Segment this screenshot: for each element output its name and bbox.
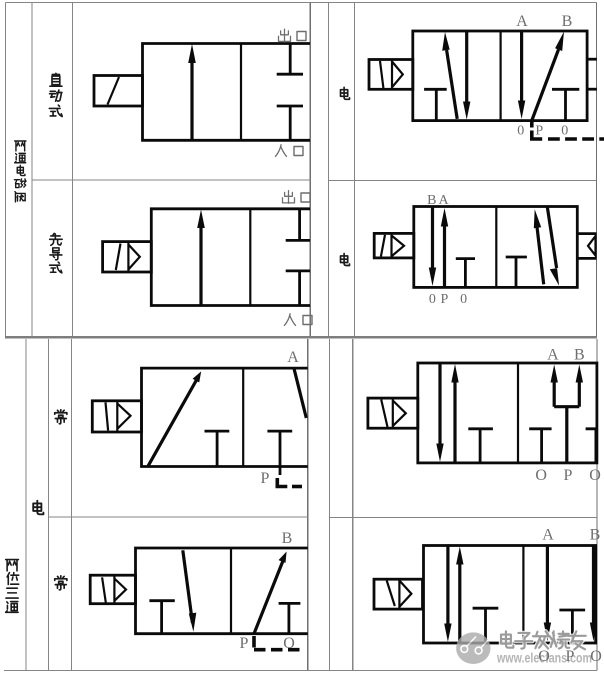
svg-text:P: P [566,648,575,665]
svg-text:A: A [547,347,559,364]
svg-text:P: P [535,124,543,139]
svg-text:O: O [589,467,601,484]
svg-text:B: B [282,530,293,547]
svg-text:P: P [441,292,449,307]
svg-text:O: O [590,648,602,665]
svg-text:B: B [574,347,585,364]
svg-text:0: 0 [429,292,436,307]
svg-text:O: O [535,467,547,484]
svg-text:P: P [240,635,249,652]
svg-text:A: A [439,193,450,208]
svg-text:0: 0 [517,124,524,139]
svg-text:P: P [261,470,270,487]
svg-text:P: P [564,467,573,484]
svg-text:B: B [562,13,573,30]
svg-text:O: O [538,648,550,665]
svg-text:B: B [427,193,436,208]
svg-text:B: B [590,527,601,544]
svg-text:A: A [516,13,528,30]
svg-text:A: A [542,527,554,544]
svg-text:A: A [287,349,299,366]
svg-text:0: 0 [561,124,568,139]
svg-text:0: 0 [460,292,467,307]
